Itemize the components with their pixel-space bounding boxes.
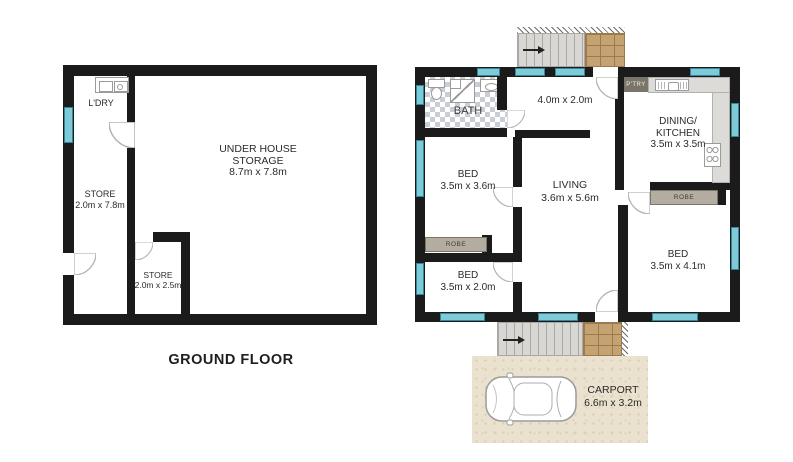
stove-icon bbox=[704, 143, 721, 167]
bottom-stairs-arrow-head bbox=[518, 336, 525, 344]
pantry-box: P'TRY bbox=[624, 77, 648, 92]
living-label: LIVING 3.6m x 5.6m bbox=[541, 179, 599, 204]
uf-window-top-bath bbox=[477, 68, 500, 76]
robe1-label: ROBE bbox=[446, 241, 466, 248]
robe2-label: ROBE bbox=[674, 194, 694, 201]
uf-bed1-bed2-wall bbox=[425, 253, 522, 262]
hall-dims-label: 4.0m x 2.0m bbox=[537, 95, 592, 107]
bottom-stairs-arrow bbox=[503, 339, 518, 341]
gf-wall-right bbox=[366, 65, 377, 325]
uf-window-top-kitchen bbox=[690, 68, 720, 76]
uf-robe2-stub-wall bbox=[718, 188, 726, 205]
store2-label: STORE 2.0m x 2.5m bbox=[135, 270, 182, 290]
bed1-label: BED 3.5m x 3.6m bbox=[440, 169, 495, 193]
floorplan-image: L'DRY STORE 2.0m x 7.8m UNDER HOUSE STOR… bbox=[0, 0, 793, 462]
bottom-landing-hatch bbox=[622, 322, 628, 360]
uf-bed1-living-wall-a bbox=[513, 137, 522, 187]
shower-icon bbox=[450, 79, 475, 103]
bed1-door-arc bbox=[493, 187, 513, 207]
uf-bath-wall-right bbox=[497, 77, 507, 110]
uf-window-right-bed3 bbox=[731, 227, 739, 270]
top-stairs-arrow-head bbox=[538, 46, 545, 54]
bed3-door-arc bbox=[628, 192, 650, 214]
bed2-door-arc bbox=[493, 262, 513, 282]
uf-window-bottom-bed2 bbox=[440, 313, 485, 321]
uf-window-left-bed2 bbox=[416, 263, 424, 295]
kitchen-counter-right bbox=[712, 92, 730, 183]
store1-label: STORE 2.0m x 7.8m bbox=[75, 189, 125, 211]
uf-window-top-hall-1 bbox=[515, 68, 545, 76]
uf-window-bottom-bed3 bbox=[652, 313, 698, 321]
entry-door-arc bbox=[596, 77, 618, 99]
gf-wall-top bbox=[63, 65, 377, 76]
front-door-arc bbox=[596, 290, 618, 312]
gf-store2-wall-right bbox=[181, 242, 190, 314]
robe1-box: ROBE bbox=[425, 237, 487, 252]
gf-wall-left-lower bbox=[63, 275, 74, 325]
sink-icon bbox=[655, 79, 689, 91]
gf-store2-door-arc bbox=[135, 242, 153, 260]
uf-hall-wall-bottom bbox=[515, 130, 590, 138]
uf-bath-wall-bottom bbox=[425, 128, 507, 137]
ldry-label: L'DRY bbox=[88, 97, 114, 109]
gf-window-left bbox=[64, 107, 73, 143]
uf-window-bottom-living bbox=[538, 313, 578, 321]
ground-floor-title: GROUND FLOOR bbox=[168, 354, 293, 366]
uf-window-right-kitchen bbox=[731, 103, 739, 137]
ground-floor-plan: L'DRY STORE 2.0m x 7.8m UNDER HOUSE STOR… bbox=[63, 65, 377, 325]
car-icon bbox=[483, 370, 579, 428]
bath-label: BATH bbox=[454, 105, 483, 117]
bed2-label: BED 3.5m x 2.0m bbox=[440, 270, 495, 294]
uf-bed1-living-wall-c bbox=[513, 282, 522, 312]
laundry-tub-icon bbox=[95, 77, 129, 93]
uf-window-top-hall-2 bbox=[555, 68, 585, 76]
gf-store2-wall-top bbox=[153, 232, 190, 242]
uf-front-door-gap bbox=[595, 312, 618, 322]
gf-inner-door-arc bbox=[109, 122, 135, 148]
toilet-bowl-icon bbox=[431, 87, 442, 100]
storage-label: UNDER HOUSE STORAGE 8.7m x 7.8m bbox=[219, 144, 297, 179]
carport-label: CARPORT 6.6m x 3.2m bbox=[584, 384, 642, 410]
bottom-landing-brick bbox=[583, 322, 622, 356]
bed3-label: BED 3.5m x 4.1m bbox=[650, 249, 705, 273]
robe2-box: ROBE bbox=[650, 190, 718, 205]
pantry-label: P'TRY bbox=[626, 82, 646, 88]
gf-wall-left-upper bbox=[63, 65, 74, 253]
gf-left-door-arc bbox=[74, 253, 96, 275]
kitchen-label: DINING/ KITCHEN 3.5m x 3.5m bbox=[650, 116, 705, 151]
gf-wall-bottom bbox=[63, 314, 377, 325]
uf-window-left-bath bbox=[416, 85, 424, 105]
bath-door-arc bbox=[507, 110, 525, 128]
uf-window-left-bed1 bbox=[416, 140, 424, 197]
top-stairs-arrow bbox=[523, 49, 538, 51]
top-landing-brick bbox=[585, 33, 625, 67]
uf-entry-door-gap bbox=[593, 67, 618, 77]
upper-floor-plan: ROBE ROBE P'TRY bbox=[415, 67, 740, 322]
uf-living-bed3-wall bbox=[618, 205, 628, 312]
